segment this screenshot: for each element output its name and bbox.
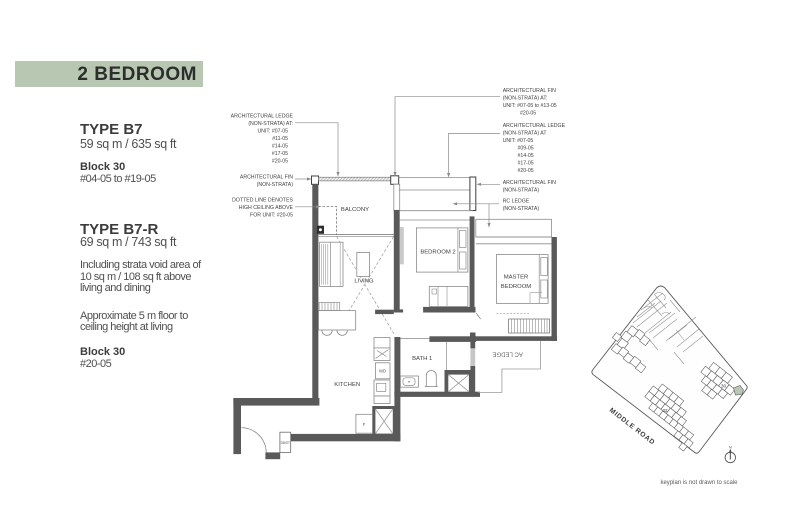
svg-text:UNIT: #07-05 to #13-05: UNIT: #07-05 to #13-05 [503, 103, 557, 109]
svg-text:#14-05: #14-05 [272, 144, 288, 150]
svg-text:#20-05: #20-05 [520, 111, 536, 117]
svg-text:(NON-STRATA): (NON-STRATA) [503, 206, 540, 212]
svg-text:(NON-STRATA) AT: (NON-STRATA) AT [503, 131, 548, 137]
svg-text:#11-05: #11-05 [272, 136, 288, 142]
svg-text:BEDROOM 2: BEDROOM 2 [420, 249, 455, 255]
svg-text:LIVING: LIVING [354, 278, 374, 284]
svg-text:F: F [363, 422, 366, 427]
svg-text:DB/ST: DB/ST [281, 441, 290, 445]
svg-text:#09-05: #09-05 [518, 146, 534, 152]
svg-text:#20-05: #20-05 [272, 159, 288, 165]
svg-text:HIGH CEILING ABOVE: HIGH CEILING ABOVE [239, 205, 294, 211]
svg-text:ARCHITECTURAL LEDGE: ARCHITECTURAL LEDGE [503, 123, 566, 129]
svg-text:ARCHITECTURAL FIN: ARCHITECTURAL FIN [503, 180, 556, 186]
svg-text:keyplan is not drawn to scale: keyplan is not drawn to scale [660, 480, 738, 486]
svg-text:ARCHITECTURAL FIN: ARCHITECTURAL FIN [240, 175, 293, 181]
svg-text:30: 30 [721, 384, 727, 389]
svg-text:BALCONY: BALCONY [341, 207, 369, 213]
svg-text:ARCHITECTURAL LEDGE: ARCHITECTURAL LEDGE [231, 114, 294, 120]
svg-text:(NON-STRATA): (NON-STRATA) [257, 182, 294, 188]
svg-text:32: 32 [662, 408, 668, 413]
svg-text:KITCHEN: KITCHEN [334, 382, 360, 388]
svg-text:(NON-STRATA) AT:: (NON-STRATA) AT: [248, 121, 293, 127]
svg-text:(NON-STRATA) AT:: (NON-STRATA) AT: [503, 96, 548, 102]
svg-text:RC LEDGE: RC LEDGE [503, 199, 530, 205]
svg-text:N: N [729, 446, 732, 450]
svg-text:#17-05: #17-05 [518, 161, 534, 167]
svg-text:ARCHITECTURAL FIN: ARCHITECTURAL FIN [503, 88, 556, 94]
svg-text:#17-05: #17-05 [272, 151, 288, 157]
svg-text:WD: WD [379, 369, 386, 374]
svg-text:DOTTED LINE DENOTES: DOTTED LINE DENOTES [232, 198, 293, 204]
svg-text:BEDROOM: BEDROOM [501, 284, 532, 290]
svg-text:FOR UNIT: #20-05: FOR UNIT: #20-05 [250, 213, 293, 219]
svg-text:MASTER: MASTER [504, 275, 529, 281]
svg-text:BATH 1: BATH 1 [412, 356, 432, 362]
svg-text:#14-05: #14-05 [518, 153, 534, 159]
svg-text:#20-05: #20-05 [518, 168, 534, 174]
svg-text:UNIT: #07-05: UNIT: #07-05 [503, 138, 534, 144]
svg-text:AC LEDGE: AC LEDGE [493, 351, 523, 357]
svg-text:(NON-STRATA): (NON-STRATA) [503, 188, 540, 194]
svg-text:UNIT: #07-05: UNIT: #07-05 [257, 129, 288, 135]
